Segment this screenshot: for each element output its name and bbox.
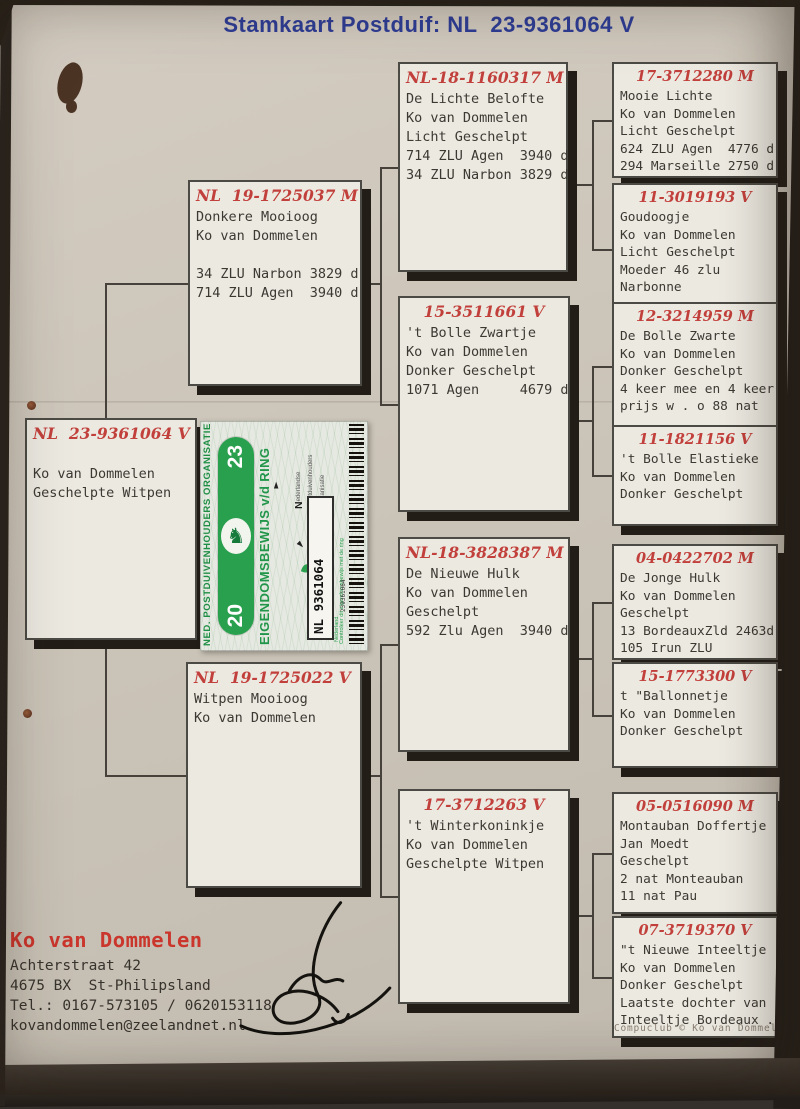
tree-connector: [592, 715, 612, 717]
tree-connector: [380, 167, 400, 169]
text-line: De Bolle Zwarte: [620, 328, 770, 346]
pedigree-lines: GoudoogjeKo van DommelenLicht GeschelptM…: [620, 209, 770, 297]
ring-id: 12-3214959 M: [620, 308, 770, 325]
pedigree-box: 12-3214959 M De Bolle ZwarteKo van Domme…: [612, 302, 778, 430]
text-line: Donker Geschelpt: [620, 363, 770, 381]
ring-id: 15-1773300 V: [620, 668, 770, 685]
text-line: Ko van Dommelen: [620, 227, 770, 245]
ring-id: NL-18-3828387 M: [406, 543, 562, 562]
pedigree-lines: 't Bolle ZwartjeKo van DommelenDonker Ge…: [406, 324, 562, 400]
hole-punch: [23, 709, 32, 718]
pedigree-lines: "t Nieuwe InteeltjeKo van DommelenDonker…: [620, 942, 770, 1030]
text-line: De Lichte Belofte: [406, 90, 560, 109]
text-line: Licht Geschelpt: [620, 244, 770, 262]
ring-id: 11-1821156 V: [620, 431, 770, 448]
text-line: Donker Geschelpt: [406, 362, 562, 381]
text-line: "t Nieuwe Inteeltje: [620, 942, 770, 960]
pedigree-box: 17-3712263 V 't WinterkoninkjeKo van Dom…: [398, 789, 570, 1004]
text-line: Ko van Dommelen: [620, 960, 770, 978]
tree-connector: [592, 120, 594, 251]
text-line: Geschelpt: [620, 605, 770, 623]
text-line: Ko van Dommelen: [620, 106, 770, 124]
pedigree-lines: Ko van DommelenGeschelpte Witpen: [33, 446, 189, 503]
pedigree-lines: Mooie LichteKo van DommelenLicht Geschel…: [620, 88, 770, 176]
text-line: 34 ZLU Narbon 3829 d: [196, 265, 354, 284]
text-line: Geschelpt: [620, 853, 770, 871]
text-line: prijs w . o 88 nat: [620, 398, 770, 416]
text-line: Ko van Dommelen: [620, 346, 770, 364]
text-line: Witpen Mooioog: [194, 690, 354, 709]
arrow-mark-icon: ►: [271, 482, 281, 489]
text-line: Mooie Lichte: [620, 88, 770, 106]
text-line: Donkere Mooioog: [196, 208, 354, 227]
pedigree-box: 15-1773300 V t "BallonnetjeKo van Dommel…: [612, 662, 778, 768]
text-line: Ko van Dommelen: [620, 588, 770, 606]
text-line: Ko van Dommelen: [620, 469, 770, 487]
ring-id: 17-3712280 M: [620, 68, 770, 85]
tree-connector: [592, 366, 594, 477]
ring-id: NL 23-9361064 V: [33, 424, 189, 443]
sticker-year-bottom: 20: [225, 604, 246, 627]
credit-text: Compuclub © Ko van Dommelen: [614, 1023, 790, 1034]
sticker-year-top: 23: [225, 445, 246, 468]
text-line: Ko van Dommelen: [406, 584, 562, 603]
text-line: 't Winterkoninkje: [406, 817, 562, 836]
text-line: Montauban Doffertje: [620, 818, 770, 836]
pedigree-lines: Witpen MooioogKo van Dommelen: [194, 690, 354, 728]
text-line: Ko van Dommelen: [196, 227, 354, 246]
pedigree-box: NL-18-1160317 M De Lichte BelofteKo van …: [398, 62, 568, 272]
text-line: 11 nat Pau: [620, 888, 770, 906]
barcode-number: 239361064: [341, 522, 347, 612]
text-line: Geschelpte Witpen: [406, 855, 562, 874]
text-line: [196, 246, 354, 265]
tree-connector: [592, 853, 612, 855]
sticker-organisation-text: NED. POSTDUIVENHOUDERS ORGANISATIE: [203, 426, 213, 646]
text-line: 294 Marseille 2750 d: [620, 158, 770, 176]
ring-id: 05-0516090 M: [620, 798, 770, 815]
text-line: 105 Irun ZLU: [620, 640, 770, 658]
text-line: Donker Geschelpt: [620, 723, 770, 741]
tree-connector: [592, 120, 612, 122]
tree-connector: [362, 283, 382, 285]
pedigree-lines: Donkere MooioogKo van Dommelen 34 ZLU Na…: [196, 208, 354, 303]
tree-connector: [362, 775, 382, 777]
text-line: Ko van Dommelen: [194, 709, 354, 728]
pedigree-box-dam: NL 19-1725022 V Witpen MooioogKo van Dom…: [186, 662, 362, 888]
lion-crest-icon: ♞: [221, 518, 251, 554]
text-line: Licht Geschelpt: [406, 128, 560, 147]
text-line: 592 Zlu Agen 3940 d: [406, 622, 562, 641]
ring-id: NL-18-1160317 M: [406, 68, 560, 87]
pedigree-lines: De Bolle ZwarteKo van DommelenDonker Ges…: [620, 328, 770, 416]
pedigree-card-paper: Stamkaart Postduif: NL 23-9361064 V NL 2…: [0, 0, 800, 1095]
pedigree-box-subject: NL 23-9361064 V Ko van DommelenGeschelpt…: [25, 418, 197, 640]
ownership-sticker: NED. POSTDUIVENHOUDERS ORGANISATIE 20 23…: [200, 421, 368, 651]
paper-stain: [66, 100, 77, 113]
text-line: 't Bolle Zwartje: [406, 324, 562, 343]
sticker-ring-number: NL 9361064: [313, 502, 326, 634]
pedigree-lines: 't WinterkoninkjeKo van DommelenGeschelp…: [406, 817, 562, 874]
tree-connector: [592, 602, 612, 604]
tree-connector: [380, 644, 400, 646]
photo-edge-corner: [0, 0, 15, 46]
ring-id: 11-3019193 V: [620, 189, 770, 206]
text-line: De Nieuwe Hulk: [406, 565, 562, 584]
pedigree-box: 07-3719370 V "t Nieuwe InteeltjeKo van D…: [612, 916, 778, 1038]
text-line: 13 BordeauxZld 2463d: [620, 623, 770, 641]
pedigree-box: 11-3019193 V GoudoogjeKo van DommelenLic…: [612, 183, 778, 315]
tree-connector: [380, 167, 382, 406]
sticker-title-text: EIGENDOMSBEWIJS v/d RING: [258, 427, 271, 645]
text-line: 4 keer mee en 4 keer: [620, 381, 770, 399]
text-line: Geschelpte Witpen: [33, 484, 189, 503]
text-line: Goudoogje: [620, 209, 770, 227]
text-line: Licht Geschelpt: [620, 123, 770, 141]
pedigree-lines: 't Bolle ElastiekeKo van DommelenDonker …: [620, 451, 770, 504]
pedigree-box: 05-0516090 M Montauban DoffertjeJan Moed…: [612, 792, 778, 914]
text-line: 624 ZLU Agen 4776 d: [620, 141, 770, 159]
tree-connector: [592, 602, 594, 717]
sticker-year-pill: 20 23 ♞: [218, 437, 254, 635]
text-line: 34 ZLU Narbon 3829 d: [406, 166, 560, 185]
tree-connector: [380, 404, 400, 406]
pedigree-box: 17-3712280 M Mooie LichteKo van Dommelen…: [612, 62, 778, 178]
pedigree-box: NL-18-3828387 M De Nieuwe HulkKo van Dom…: [398, 537, 570, 752]
tree-connector: [570, 420, 592, 422]
signature: [221, 892, 406, 1059]
tree-connector: [592, 475, 612, 477]
pedigree-box: 11-1821156 V 't Bolle ElastiekeKo van Do…: [612, 425, 778, 526]
text-line: Donker Geschelpt: [620, 977, 770, 995]
tree-connector: [592, 366, 612, 368]
arrow-mark-icon: ►: [294, 539, 306, 551]
pedigree-lines: De Lichte BelofteKo van DommelenLicht Ge…: [406, 90, 560, 185]
ring-id: 04-0422702 M: [620, 550, 770, 567]
ring-id: 07-3719370 V: [620, 922, 770, 939]
pedigree-box: 04-0422702 M De Jonge HulkKo van Dommele…: [612, 544, 778, 660]
ring-id: 17-3712263 V: [406, 795, 562, 814]
tree-connector: [568, 184, 592, 186]
pedigree-lines: De Jonge HulkKo van DommelenGeschelpt13 …: [620, 570, 770, 658]
text-line: Moeder 46 zlu: [620, 262, 770, 280]
text-line: De Jonge Hulk: [620, 570, 770, 588]
tree-connector: [592, 853, 594, 979]
barcode: [349, 424, 364, 648]
text-line: 2 nat Monteauban: [620, 871, 770, 889]
text-line: 't Bolle Elastieke: [620, 451, 770, 469]
tree-connector: [592, 977, 612, 979]
hole-punch: [27, 401, 36, 410]
pedigree-lines: Montauban DoffertjeJan MoedtGeschelpt2 n…: [620, 818, 770, 906]
tree-connector: [380, 644, 382, 898]
ring-id: NL 19-1725022 V: [194, 668, 354, 687]
text-line: Donker Geschelpt: [620, 486, 770, 504]
photo-edge: [0, 1058, 800, 1107]
tree-connector: [105, 775, 187, 777]
page-title: Stamkaart Postduif: NL 23-9361064 V: [0, 12, 800, 38]
sticker-npo-word: Nederlandse: [294, 434, 305, 509]
text-line: Jan Moedt: [620, 836, 770, 854]
text-line: Ko van Dommelen: [406, 343, 562, 362]
text-line: 1071 Agen 4679 d: [406, 381, 562, 400]
text-line: Laatste dochter van: [620, 995, 770, 1013]
tree-connector: [592, 249, 612, 251]
text-line: Ko van Dommelen: [406, 836, 562, 855]
text-line: [33, 446, 189, 465]
pedigree-lines: t "BallonnetjeKo van DommelenDonker Gesc…: [620, 688, 770, 741]
pedigree-box-sire: NL 19-1725037 M Donkere MooioogKo van Do…: [188, 180, 362, 386]
tree-connector: [570, 915, 592, 917]
ring-id: NL 19-1725037 M: [196, 186, 354, 205]
sticker-ring-number-box: NL 9361064: [307, 496, 334, 640]
text-line: t "Ballonnetje: [620, 688, 770, 706]
pedigree-lines: De Nieuwe HulkKo van DommelenGeschelpt59…: [406, 565, 562, 641]
text-line: 714 ZLU Agen 3940 d: [406, 147, 560, 166]
tree-connector: [105, 283, 189, 285]
ring-id: 15-3511661 V: [406, 302, 562, 321]
text-line: Ko van Dommelen: [33, 465, 189, 484]
tree-connector: [570, 658, 592, 660]
pedigree-box: 15-3511661 V 't Bolle ZwartjeKo van Domm…: [398, 296, 570, 512]
text-line: 714 ZLU Agen 3940 d: [196, 284, 354, 303]
text-line: Ko van Dommelen: [620, 706, 770, 724]
text-line: Ko van Dommelen: [406, 109, 560, 128]
text-line: Geschelpt: [406, 603, 562, 622]
text-line: Narbonne: [620, 279, 770, 297]
